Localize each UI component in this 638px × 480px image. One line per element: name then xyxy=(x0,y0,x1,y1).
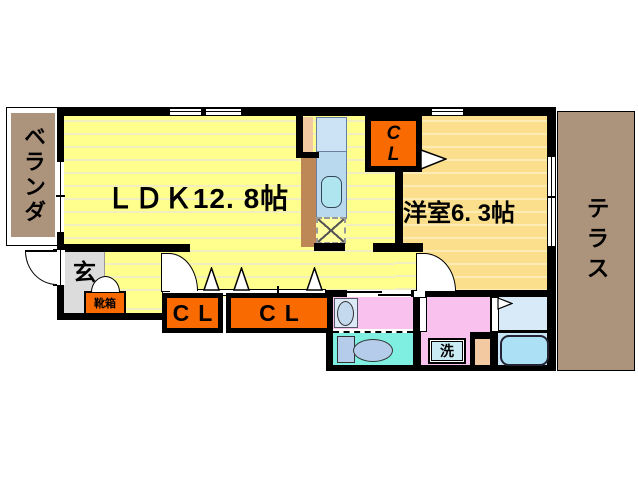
washroom-slide-door-line2 xyxy=(378,294,411,296)
water-heater-box xyxy=(475,339,490,365)
utility-door-leaf xyxy=(419,297,427,332)
window-top-western xyxy=(432,109,463,115)
wall-kitchen-vertical xyxy=(296,107,303,158)
label-entrance: 玄 xyxy=(64,253,105,287)
closet-fold-triangle-icon-2 xyxy=(233,267,250,291)
closet-hall-left: CL xyxy=(167,298,218,328)
terrace-label: テラス xyxy=(579,196,613,286)
window-balcony-tick xyxy=(56,195,65,197)
closet-hall-right-label: CL xyxy=(250,300,308,327)
closet-hall-right: CL xyxy=(231,298,327,328)
window-balcony xyxy=(57,162,64,232)
closet-main-label-line2: L xyxy=(388,144,400,165)
closet-main-door-triangle-icon xyxy=(420,149,447,170)
washroom-slide-door-line1 xyxy=(347,291,382,293)
kitchen-counter-top xyxy=(316,117,347,154)
window-top-ldk-2 xyxy=(206,109,241,115)
toilet-partition-dashed xyxy=(333,329,413,333)
toilet-bowl xyxy=(353,339,393,362)
shoe-box: 靴箱 xyxy=(84,291,126,315)
balcony-label: ベランダ xyxy=(11,113,55,237)
wall-kitchen-end xyxy=(314,243,345,251)
front-door-open-line xyxy=(25,250,57,252)
wall-kitchen-horizontal xyxy=(296,152,319,158)
wall-heater-top xyxy=(470,332,490,339)
washing-machine-label: 洗 xyxy=(440,341,454,361)
label-western-room: 洋室6. 3帖 xyxy=(380,193,538,228)
label-ldk: ＬＤＫ12. 8帖 xyxy=(100,177,295,217)
front-door-arc xyxy=(25,251,57,285)
closet-hall-left-label: CL xyxy=(164,300,222,327)
wall-bath-divider xyxy=(498,330,547,333)
closet-fold-triangle-icon-1 xyxy=(203,267,220,291)
wall-top xyxy=(57,107,556,116)
washing-machine: 洗 xyxy=(431,341,463,361)
kitchen-sink xyxy=(321,176,342,208)
window-terrace xyxy=(548,157,555,246)
terrace: テラス xyxy=(557,111,635,371)
closet-fold-triangle-icon-3 xyxy=(306,267,323,291)
closet-main-label-line1: C xyxy=(387,123,401,144)
kitchen-peach-strip xyxy=(303,117,313,152)
washbasin xyxy=(337,301,354,326)
kitchen-fridge-strip xyxy=(301,158,317,247)
closet-main: C L xyxy=(371,121,416,166)
window-terrace-tick xyxy=(547,196,556,198)
floorplan: テラス ベランダ C L CL CL 靴箱 xyxy=(0,0,638,480)
bathtub xyxy=(500,335,549,366)
window-top-ldk-1 xyxy=(170,109,201,115)
wall-ldk-entrance xyxy=(57,244,190,252)
appliance-dashed-box xyxy=(316,217,346,244)
wall-left-upper xyxy=(57,107,64,162)
shoe-box-label: 靴箱 xyxy=(94,295,116,311)
bath-door-triangle-icon xyxy=(497,297,513,310)
